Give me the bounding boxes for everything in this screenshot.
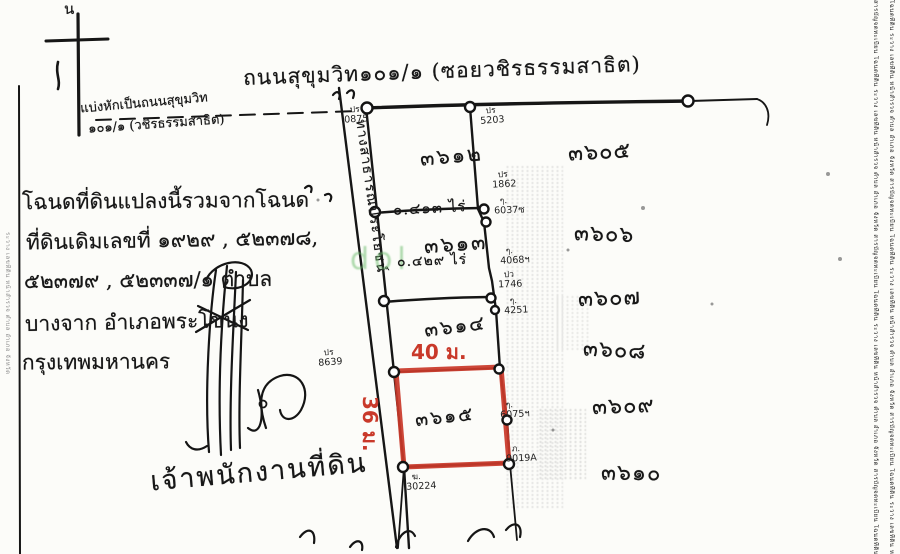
- neighbor-parcel-number: ๓๖๐๘: [582, 330, 647, 368]
- deed-note-line: ที่ดินเดิมเลขที่ ๑๙๒๙ , ๕๒๓๗๘,: [26, 221, 319, 259]
- right-margin-microtext: สารบัญจดทะเบียน โฉนดที่ดิน ระวาง เลขที่ด…: [872, 0, 879, 554]
- boundary-mark: ๆ. 6037ซ: [494, 195, 525, 216]
- boundary-mark-number: 6037ซ: [494, 204, 525, 216]
- neighbor-parcel-number: ๓๖๐๖: [573, 215, 635, 252]
- parcel-area: ๐.๔๑๓ ไร่: [392, 194, 467, 222]
- parcel-area: ๐.๔๒๙ ไร่: [397, 249, 468, 273]
- deed-note-line: ๕๒๓๗๙ , ๕๒๓๓๗/๑ ตำบล: [24, 263, 273, 298]
- boundary-mark-number: 0875: [344, 113, 369, 125]
- boundary-mark: ปร 8639: [317, 347, 343, 369]
- boundary-mark: ฆ. 30224: [405, 471, 436, 493]
- boundary-mark: ปร 1862: [491, 169, 516, 190]
- boundary-mark-number: 4068ฯ: [500, 254, 530, 267]
- neighbor-parcel-number: ๓๖๑๐: [601, 454, 662, 490]
- right-margin-microtext: โฉนดที่ดิน ระวาง เลขที่ดิน หน้าสำรวจ ตำบ…: [888, 0, 895, 554]
- boundary-mark-number: 5203: [480, 114, 505, 127]
- scanned-land-deed-map: น ถนนสุขุมวิท๑๐๑/๑ (ซอยวชิรธรรมสาธิต) แบ…: [0, 0, 900, 554]
- neighbor-parcel-number: ๓๖๐๙: [591, 387, 655, 424]
- boundary-mark-number: 30224: [406, 480, 437, 493]
- width-dimension-label: 40 ม.: [411, 336, 467, 368]
- boundary-mark-number: 1746: [498, 279, 523, 291]
- deed-note-line: โฉนดที่ดินแปลงนี้รวมจากโฉนด: [22, 184, 309, 220]
- left-margin-microtext: ระวาง เลขที่ดิน หน้าสำรวจ ตำบล อำเภอ จัง…: [4, 232, 11, 472]
- neighbor-parcel-number: ๓๖๐๕: [567, 132, 632, 170]
- deed-note-line: กรุงเทพมหานคร: [22, 345, 171, 379]
- boundary-mark: ปว 1746: [498, 270, 523, 291]
- north-label: น: [64, 0, 74, 21]
- boundary-mark: ภ. 9019A: [506, 443, 537, 464]
- boundary-mark-number: 8639: [318, 356, 343, 369]
- boundary-mark: ๆ. 4251: [503, 295, 528, 316]
- parcel-number: ๓๖๑๒: [419, 137, 484, 175]
- boundary-mark: ๆ. 4068ฯ: [499, 245, 530, 267]
- boundary-mark: ปร 5203: [479, 105, 505, 127]
- neighbor-parcel-number: ๓๖๐๗: [577, 279, 641, 316]
- boundary-mark-number: 4251: [504, 304, 529, 316]
- boundary-mark-number: 1862: [492, 178, 517, 190]
- boundary-mark: ๆ. 6075ฯ: [499, 399, 530, 421]
- boundary-mark: ปร 0875: [343, 104, 368, 125]
- deed-note-line: บางจาก อำเภอพระโขนง: [25, 304, 249, 341]
- highlighted-parcel-number: ๓๖๑๕: [414, 399, 476, 435]
- boundary-mark-number: 6075ฯ: [500, 408, 530, 421]
- boundary-mark-number: 9019A: [506, 452, 537, 464]
